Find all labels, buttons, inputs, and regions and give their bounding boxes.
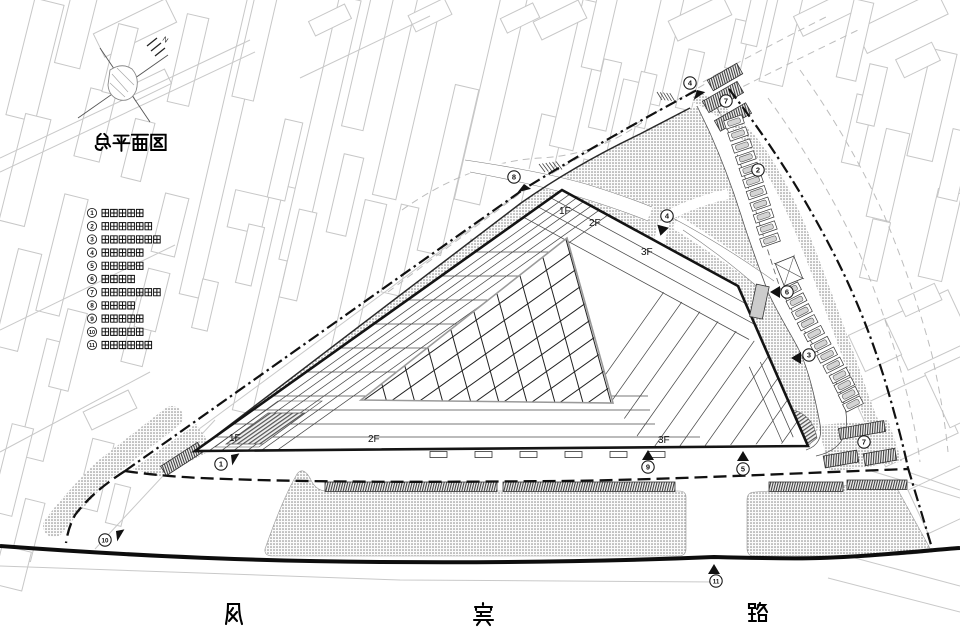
svg-text:1: 1: [219, 460, 223, 469]
svg-text:1: 1: [90, 210, 94, 217]
svg-text:8: 8: [90, 303, 94, 310]
svg-text:9: 9: [646, 463, 650, 472]
svg-text:1F: 1F: [229, 433, 241, 444]
svg-text:2F: 2F: [368, 434, 380, 445]
svg-text:3: 3: [807, 351, 811, 360]
svg-text:7: 7: [90, 289, 94, 296]
svg-text:3F: 3F: [641, 247, 653, 258]
svg-text:2: 2: [90, 223, 94, 230]
svg-text:7: 7: [862, 438, 866, 447]
svg-text:11: 11: [89, 343, 95, 349]
svg-text:4: 4: [90, 250, 94, 257]
svg-text:9: 9: [90, 316, 94, 323]
svg-text:5: 5: [741, 465, 745, 474]
svg-text:7: 7: [724, 97, 728, 106]
svg-text:11: 11: [713, 579, 720, 586]
svg-text:6: 6: [90, 276, 94, 283]
svg-text:8: 8: [512, 173, 516, 182]
svg-text:3: 3: [90, 237, 94, 244]
svg-text:5: 5: [90, 263, 94, 270]
svg-text:10: 10: [102, 538, 109, 545]
svg-text:3F: 3F: [658, 435, 670, 446]
svg-text:10: 10: [89, 330, 95, 336]
svg-text:2F: 2F: [589, 218, 601, 229]
svg-text:2: 2: [756, 166, 760, 175]
svg-text:1F: 1F: [559, 206, 571, 217]
svg-text:6: 6: [785, 288, 789, 297]
